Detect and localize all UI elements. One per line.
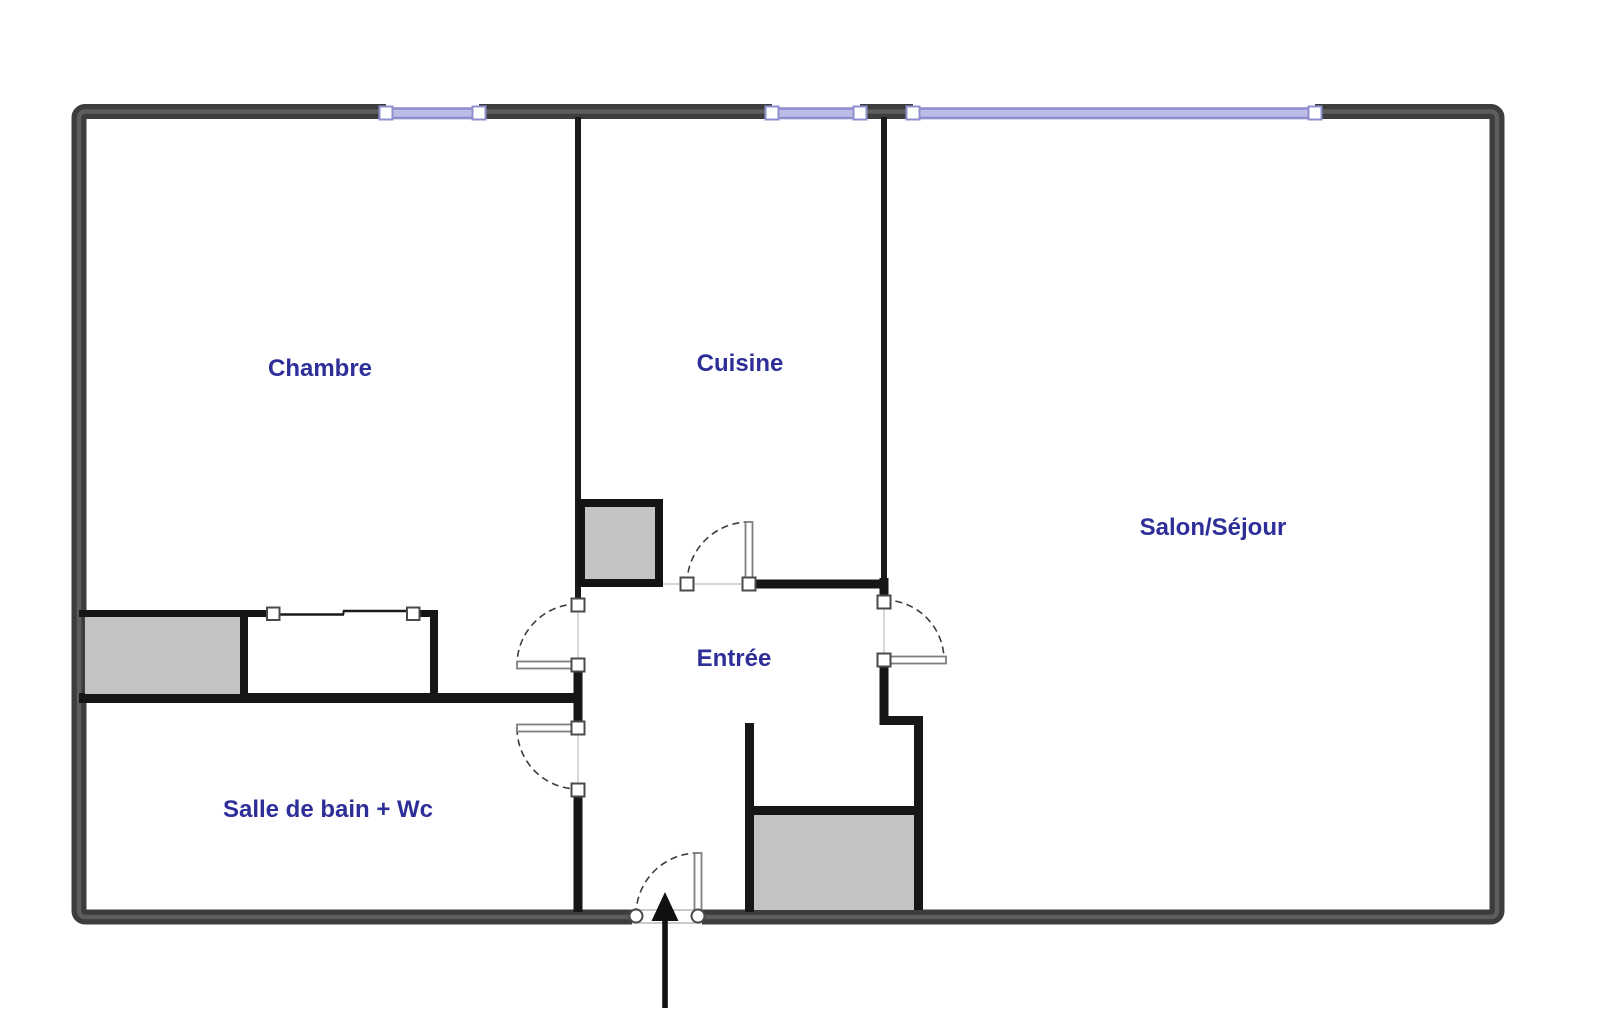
hall-cabinet-fixture [754,815,914,910]
window-1 [380,104,486,120]
window-3 [907,104,1322,120]
room-label-chambre: Chambre [268,355,372,383]
door-chambre [517,599,585,672]
window-2 [766,104,867,120]
wardrobe-fixture [85,616,240,694]
door-bathroom [517,722,585,797]
hall-alcove [745,723,923,912]
bedroom-wardrobe [79,608,438,695]
room-label-cuisine: Cuisine [697,350,784,378]
floorplan-drawing [0,0,1600,1012]
room-label-salle-de-bain: Salle de bain + Wc [223,796,433,824]
sliding-closet-doors [267,608,420,621]
floorplan-canvas: Chambre Cuisine Salon/Séjour Entrée Sall… [0,0,1600,1012]
door-cuisine [681,522,756,591]
kitchen-fixture [581,503,659,583]
room-label-salon-sejour: Salon/Séjour [1140,514,1287,542]
room-label-entree: Entrée [697,645,772,673]
door-salon [878,596,947,667]
